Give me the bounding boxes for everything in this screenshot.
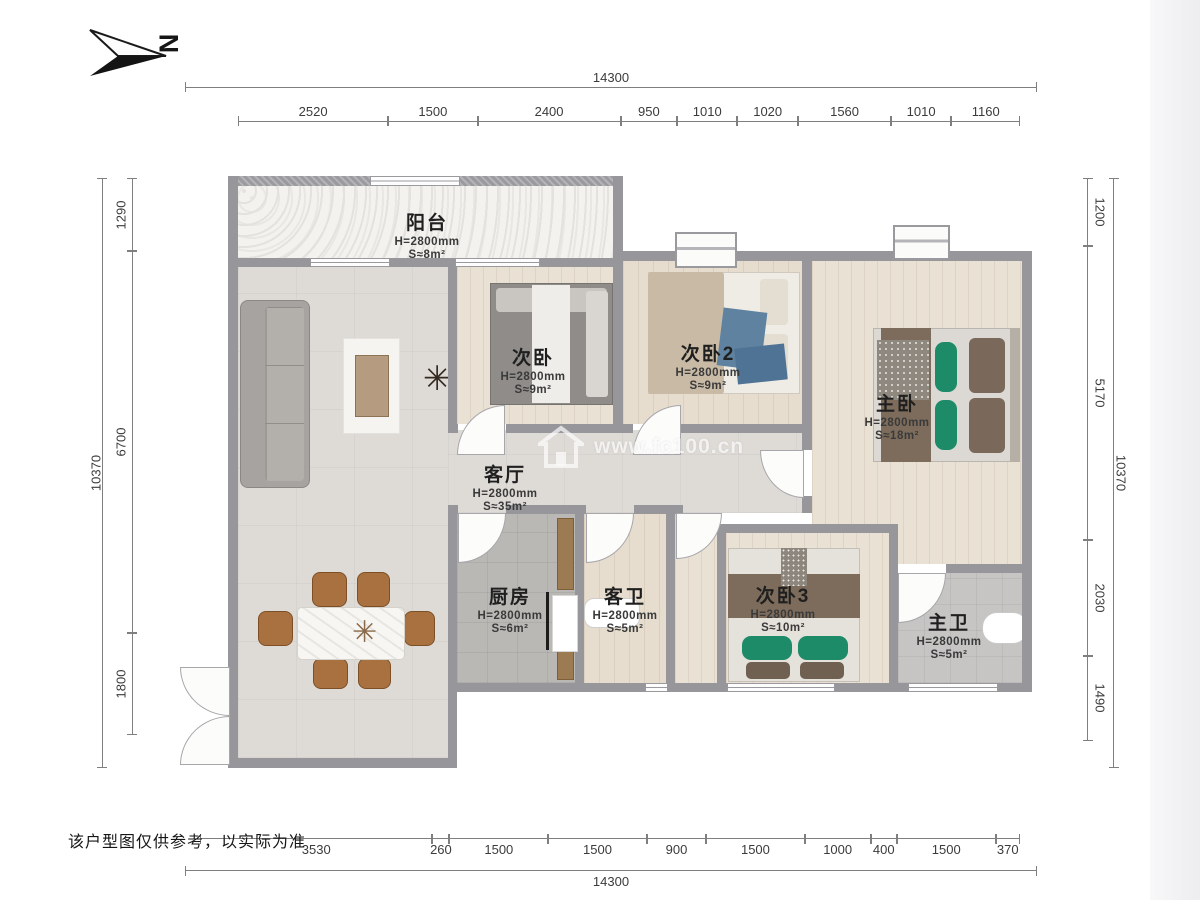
window [645, 683, 668, 692]
table-centerpiece-icon: ✳ [352, 618, 377, 648]
wall [228, 758, 457, 768]
room-label-kitchen: 厨房 H=2800mm S≈6m² [477, 587, 542, 635]
dim-chain-bottom: 353026015001500900150010004001500370 [185, 838, 1037, 860]
room-label-guest-bathroom: 客卫 H=2800mm S≈5m² [592, 587, 657, 635]
window [310, 258, 390, 267]
page-edge-band [1150, 0, 1200, 900]
wall [889, 564, 898, 573]
coffee-table [355, 355, 389, 417]
window [455, 258, 540, 267]
dim-total-bottom: 14300 [185, 870, 1037, 892]
kitchen-counter [557, 650, 574, 680]
entry-door-leaf-lower [180, 716, 230, 765]
wall [613, 261, 623, 433]
sofa [240, 300, 310, 488]
wall [802, 251, 812, 433]
bay-window [893, 225, 950, 260]
dim-total-left: 10370 [89, 178, 103, 768]
wall [946, 564, 1032, 573]
entry-door-leaf-upper [180, 667, 230, 716]
wall [802, 433, 812, 450]
window [727, 683, 835, 692]
window [370, 176, 460, 186]
wall [681, 424, 812, 433]
wall [889, 524, 898, 692]
bay-window [675, 232, 737, 268]
wall [506, 424, 633, 433]
dining-table [297, 607, 405, 660]
dining-chair [258, 611, 293, 646]
dim-chain-right: 1200517020301490 [1087, 178, 1111, 768]
sliding-door-panel [552, 595, 578, 652]
room-label-balcony: 阳台 H=2800mm S≈8m² [394, 213, 459, 261]
north-label: N [152, 34, 183, 54]
dining-chair [313, 658, 348, 689]
dining-chair [357, 572, 390, 607]
wall [802, 496, 812, 513]
wall [717, 524, 898, 533]
room-label-bedroom2b: 次卧2 H=2800mm S≈9m² [675, 344, 740, 392]
dim-total-top: 14300 [185, 66, 1037, 88]
dim-chain-top: 25201500240095010101020156010101160 [185, 100, 1037, 122]
dim-total-right: 10370 [1113, 178, 1127, 768]
disclaimer-text: 该户型图仅供参考，以实际为准 [68, 828, 306, 852]
room-label-master-bathroom: 主卫 H=2800mm S≈5m² [916, 613, 981, 661]
room-label-master-bedroom: 主卧 H=2800mm S≈18m² [864, 394, 929, 442]
wall [666, 513, 675, 683]
wall [1022, 251, 1032, 692]
dim-chain-left: 129067001800 [109, 178, 133, 768]
dining-chair [312, 572, 347, 607]
floorplan-page: N ✳ ✳ [0, 0, 1200, 900]
dining-chair [358, 658, 391, 689]
wall [448, 513, 457, 683]
wall [448, 505, 458, 514]
window [908, 683, 998, 692]
room-label-bedroom3: 次卧3 H=2800mm S≈10m² [750, 586, 815, 634]
room-label-bedroom2: 次卧 H=2800mm S≈9m² [500, 348, 565, 396]
wall [448, 424, 458, 433]
room-label-living-room: 客厅 H=2800mm S≈35m² [472, 465, 537, 513]
wall [448, 683, 457, 768]
sliding-door-track [546, 592, 549, 650]
wall [717, 533, 726, 683]
wall [448, 258, 457, 430]
dining-chair [404, 611, 435, 646]
wall [613, 176, 623, 261]
kitchen-counter [557, 518, 574, 590]
